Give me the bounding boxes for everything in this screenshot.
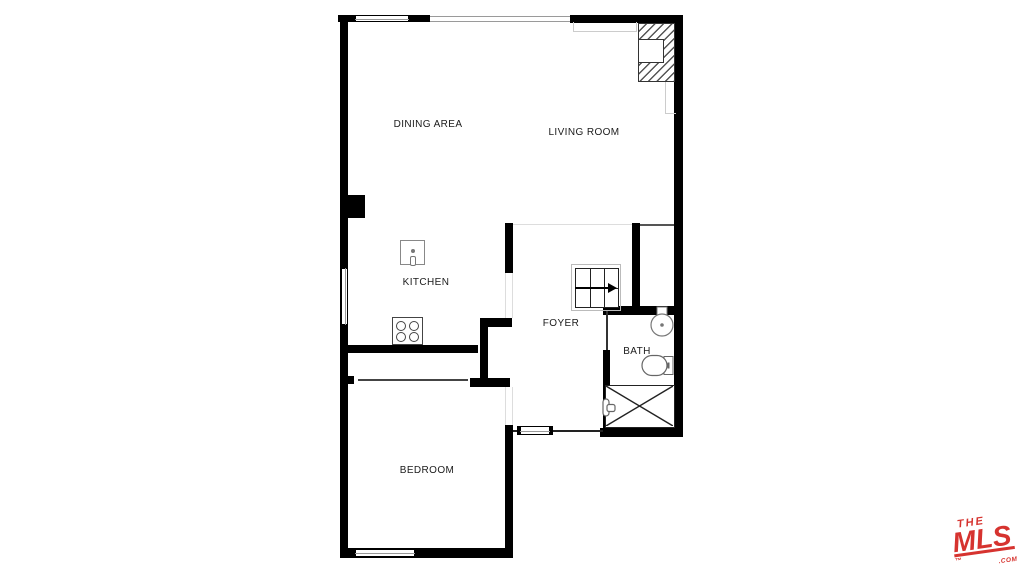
window-bedroom-south [352, 549, 418, 557]
wall-chimney-nub [348, 195, 365, 218]
stairs-direction-arrowhead [608, 283, 617, 293]
window-foyer-south [517, 426, 553, 435]
wall-kitchen-south [348, 345, 478, 353]
window-dining-north [352, 15, 412, 22]
pedestal-sink-icon [649, 306, 675, 338]
window-glass-line [520, 431, 550, 432]
wall-connector-horizontal [480, 318, 512, 327]
room-label-bath: BATH [623, 346, 651, 357]
floor-plan: DINING AREA LIVING ROOM KITCHEN FOYER BA… [0, 0, 1024, 576]
closet-opening-line [640, 224, 674, 226]
logo-mls-text: MLS [951, 523, 1015, 557]
kitchen-door-jamb-right [512, 273, 513, 318]
bedroom-door-jamb-right [512, 387, 513, 425]
wall-connector-vertical [480, 318, 488, 386]
bedroom-opening-line [358, 379, 468, 381]
kitchen-door-jamb-left [505, 273, 506, 318]
logo-trademark: ™ [955, 557, 963, 565]
room-label-living-room: LIVING ROOM [548, 127, 619, 138]
window-glass-line [355, 553, 415, 554]
fireplace-hearth-line [665, 82, 676, 114]
toilet-icon [641, 354, 675, 378]
stove-icon [392, 317, 423, 345]
room-label-kitchen: KITCHEN [403, 277, 450, 288]
fireplace-firebox [638, 39, 664, 63]
top-wall-opening [430, 16, 570, 22]
stove-burner [396, 321, 406, 331]
kitchen-sink-icon [400, 240, 425, 265]
window-glass-line [355, 19, 409, 20]
stairs-direction-arrow [575, 287, 609, 289]
sink-faucet [410, 256, 416, 266]
shower-valve-icon [600, 398, 618, 418]
wall-bath-south [600, 428, 683, 437]
wall-bedroom-right [505, 425, 513, 558]
living-foyer-break-line [513, 224, 632, 225]
bedroom-door-jamb-left [505, 387, 506, 425]
stove-burner [396, 332, 406, 342]
bath-door-opening-line [606, 310, 608, 350]
themls-logo: THE MLS™ .COM [949, 512, 1020, 576]
room-label-bedroom: BEDROOM [400, 465, 454, 476]
wall-bedroom-north-nub [346, 376, 354, 384]
stove-burner [409, 321, 419, 331]
window-kitchen-west [341, 265, 348, 328]
room-label-dining-area: DINING AREA [394, 119, 463, 130]
sink-drain [411, 249, 415, 253]
wall-right [674, 15, 683, 437]
wall-closet [632, 223, 640, 309]
living-room-shelf-line [573, 22, 637, 32]
stove-burner [409, 332, 419, 342]
room-label-foyer: FOYER [543, 318, 579, 329]
window-glass-line [345, 268, 346, 325]
wall-bedroom-north [470, 378, 510, 387]
wall-kitchen-foyer [505, 223, 513, 273]
